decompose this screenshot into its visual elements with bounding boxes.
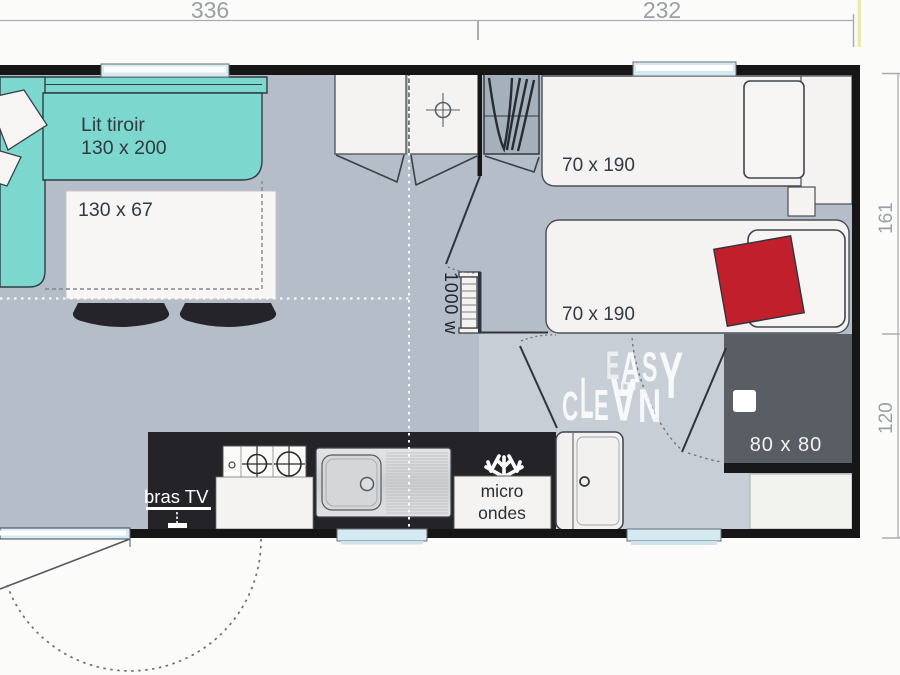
svg-text:336: 336 [191,0,229,23]
svg-text:70 x 190: 70 x 190 [562,155,635,176]
svg-text:N: N [638,380,661,433]
svg-text:70 x 190: 70 x 190 [562,304,635,325]
svg-text:120: 120 [876,402,897,434]
svg-text:bras TV: bras TV [144,486,209,507]
svg-text:micro: micro [481,481,524,501]
svg-text:130 x 200: 130 x 200 [81,137,167,159]
svg-text:A: A [610,366,637,433]
svg-text:ondes: ondes [478,503,526,523]
svg-text:Y: Y [659,340,683,413]
svg-text:232: 232 [643,0,681,23]
svg-text:80 x 80: 80 x 80 [750,434,823,456]
svg-text:Lit tiroir: Lit tiroir [81,114,145,136]
svg-text:C: C [562,384,578,430]
svg-text:130 x 67: 130 x 67 [78,199,153,221]
svg-text:E: E [594,382,609,430]
svg-text:1000 w: 1000 w [441,272,461,335]
svg-text:161: 161 [876,202,897,234]
svg-text:L: L [580,366,593,431]
